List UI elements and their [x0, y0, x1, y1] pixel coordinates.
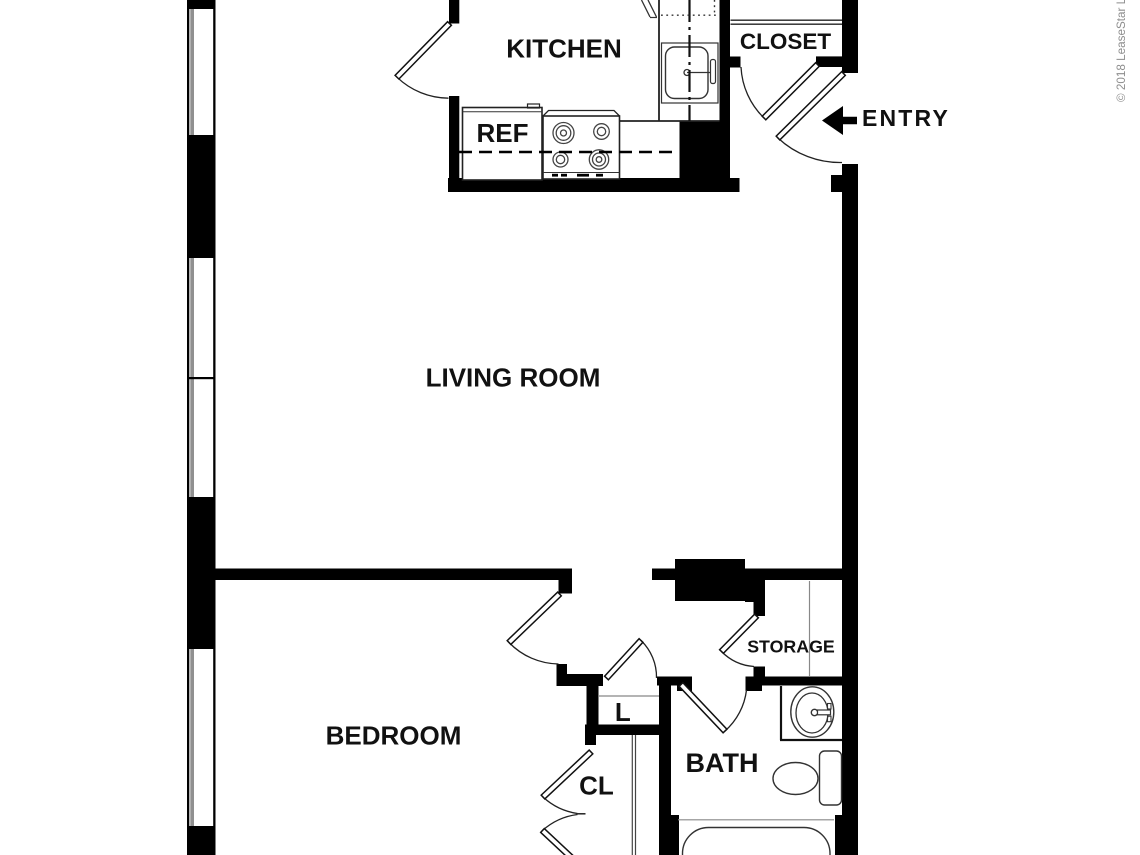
svg-text:L: L	[615, 697, 631, 727]
svg-text:CLOSET: CLOSET	[740, 29, 832, 54]
svg-text:STORAGE: STORAGE	[747, 636, 835, 656]
svg-text:LIVING ROOM: LIVING ROOM	[426, 363, 601, 393]
svg-text:BATH: BATH	[686, 748, 759, 778]
svg-text:ENTRY: ENTRY	[862, 105, 950, 131]
svg-text:REF: REF	[477, 118, 529, 148]
svg-text:BEDROOM: BEDROOM	[326, 720, 462, 750]
svg-text:KITCHEN: KITCHEN	[506, 34, 622, 64]
svg-text:© 2018 LeaseStar L: © 2018 LeaseStar L	[1115, 0, 1128, 102]
svg-text:CL: CL	[579, 770, 614, 800]
